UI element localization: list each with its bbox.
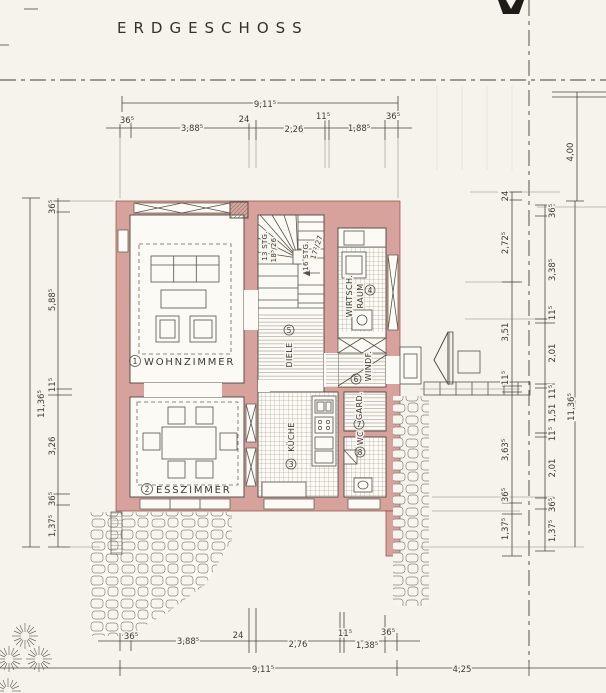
dim-left-overall-line bbox=[22, 198, 40, 547]
window-kueche-south bbox=[264, 499, 314, 509]
terrace-flagstones bbox=[90, 512, 232, 636]
dim-bottom-overall-line bbox=[0, 660, 606, 676]
dim-left-seg-2: 11⁵ bbox=[48, 378, 58, 392]
kueche-number: 3 bbox=[289, 460, 294, 469]
dim-left-overall: 11,36⁵ bbox=[37, 390, 47, 418]
dim-right-inner-3: 11⁵ bbox=[501, 371, 511, 385]
dim-top-seg-0: 36⁵ bbox=[120, 116, 134, 126]
dim-right-outer-1: 3,38⁵ bbox=[548, 259, 558, 281]
entrance-arrow bbox=[434, 332, 453, 384]
dim-left-seg-4: 36⁵ bbox=[48, 492, 58, 506]
dim-left-seg-1: 5,88⁵ bbox=[48, 289, 58, 311]
walkway bbox=[424, 382, 530, 395]
window-left bbox=[118, 230, 128, 252]
stepping-stones bbox=[393, 396, 429, 606]
dim-bottom-seg-0: 36⁵ bbox=[124, 632, 138, 642]
dim-top-seg-5: 1,88⁵ bbox=[348, 124, 370, 134]
dim-top-seg-3: 2,26 bbox=[285, 125, 304, 135]
dim-top-seg-4: 11⁵ bbox=[316, 112, 330, 122]
dim-right-outer-4: 11⁵ bbox=[548, 385, 558, 399]
dim-right-outer-9: 1,37⁵ bbox=[548, 520, 558, 542]
dim-right-outer-2: 11⁵ bbox=[548, 306, 558, 320]
window-wc-south bbox=[348, 499, 380, 509]
window-right bbox=[388, 255, 398, 330]
dim-left-seg-5: 1,37⁵ bbox=[48, 515, 58, 537]
dim-right-inner-5: 36⁵ bbox=[501, 488, 511, 502]
path-slab bbox=[458, 351, 480, 373]
dim-right-inner-6: 1,37⁵ bbox=[501, 518, 511, 540]
wohnzimmer-number: 1 bbox=[133, 357, 138, 366]
esszimmer-number: 2 bbox=[145, 485, 150, 494]
dim-top-seg-1: 3,88⁵ bbox=[181, 124, 203, 134]
window-esszimmer-south bbox=[140, 499, 230, 509]
dim-bottom-seg-4: 11⁵ bbox=[338, 629, 352, 639]
garden-steps bbox=[111, 512, 122, 554]
entry-stoop bbox=[400, 347, 421, 384]
dim-left-seg-3: 3,26 bbox=[48, 437, 58, 456]
dim-right-outer-8: 36⁵ bbox=[548, 498, 558, 512]
dim-bottom-seg-2: 24 bbox=[233, 631, 244, 641]
wirtschaftsraum-number: 4 bbox=[368, 286, 373, 295]
garderobe-hatch bbox=[344, 392, 386, 431]
dim-right-outer-0: 36⁵ bbox=[548, 204, 558, 218]
dim-right-overall-line bbox=[566, 201, 584, 547]
dim-bottom-seg-1: 3,88⁵ bbox=[177, 637, 199, 647]
windfang-number: 6 bbox=[354, 375, 359, 384]
dim-right-inner-1: 2,72⁵ bbox=[501, 232, 511, 254]
dim-right-outer-6: 11⁵ bbox=[548, 427, 558, 441]
north-marker-icon bbox=[498, 0, 524, 14]
dim-top-overall: 9,11⁵ bbox=[254, 100, 276, 110]
dim-right-outer-5: 1,51 bbox=[548, 404, 558, 423]
entry-door-opening bbox=[386, 356, 400, 384]
stair-flight2-count: 16 STG. bbox=[302, 241, 310, 271]
dim-top-seg-6: 36⁵ bbox=[386, 112, 400, 122]
dim-right-outer-3: 2,01 bbox=[548, 344, 558, 363]
dim-right-inner-4: 3,63⁵ bbox=[501, 439, 511, 461]
garderobe-label: GARD. bbox=[355, 392, 364, 420]
esszimmer-label: ESSZIMMER bbox=[156, 485, 232, 496]
dim-right-overall: 11,36⁵ bbox=[567, 393, 577, 421]
dim-bottom-overall: 9,11⁵ bbox=[252, 665, 274, 675]
diele-label: DIELE bbox=[285, 342, 294, 367]
dim-left-seg-0: 36⁵ bbox=[48, 200, 58, 214]
dim-bottom-seg-5: 1,38⁵ bbox=[356, 641, 378, 651]
wirtschaftsraum-label-2: RAUM bbox=[356, 283, 365, 308]
dim-setback: 4,00 bbox=[566, 143, 576, 162]
dim-bottom-seg-6: 36⁵ bbox=[381, 628, 395, 638]
diele-number: 5 bbox=[287, 326, 292, 335]
wc-label: WC bbox=[356, 431, 365, 445]
page-title: ERDGESCHOSS bbox=[117, 19, 309, 37]
dim-right-outer-7: 2,01 bbox=[548, 459, 558, 478]
dim-bottom-seg-3: 2,76 bbox=[289, 640, 308, 650]
kueche-label: KÜCHE bbox=[286, 422, 296, 452]
wc-number: 8 bbox=[358, 448, 363, 457]
windfang-label: WINDF. bbox=[364, 351, 373, 382]
chimney bbox=[230, 202, 248, 218]
dim-top-seg-2: 24 bbox=[239, 115, 250, 125]
garderobe-number: 7 bbox=[357, 420, 362, 429]
dim-right-inner-2: 3,51 bbox=[501, 323, 511, 342]
wirtschaftsraum-label-1: WIRTSCH. bbox=[345, 275, 354, 317]
stair-flight1-step: 18⁵/26 bbox=[270, 237, 278, 262]
dim-setback-line bbox=[552, 92, 606, 201]
dim-right-inner-0: 24 bbox=[501, 191, 511, 202]
floor-plan-sheet: ERDGESCHOSS bbox=[0, 0, 606, 693]
window-wirtschaftsraum-south bbox=[338, 338, 386, 353]
window-top bbox=[134, 203, 230, 213]
stair-flight1-count: 13 STG. bbox=[261, 231, 269, 261]
dim-bottom-offset: 4,25 bbox=[453, 665, 472, 675]
wohnzimmer-label: WOHNZIMMER bbox=[144, 357, 235, 368]
